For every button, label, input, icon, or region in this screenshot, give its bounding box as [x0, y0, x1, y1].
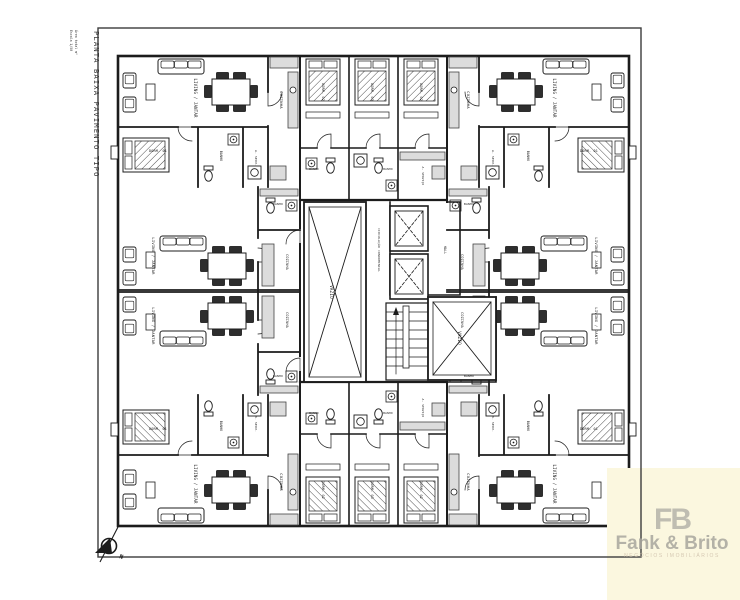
- logo-name: Fank & Brito: [616, 533, 729, 554]
- room-label: LIVING / JANTAR: [193, 464, 198, 504]
- room-label: BANHO: [526, 151, 530, 162]
- door-arc: [286, 230, 300, 244]
- room-label: LIVING / JANTAR: [594, 237, 599, 275]
- room-label: BANHO: [464, 374, 474, 378]
- room-label: COZINHA: [279, 473, 284, 491]
- room-label: COZINHA: [460, 312, 464, 328]
- room-label: BANHO: [219, 151, 223, 162]
- room-label: DORM. 02: [321, 83, 325, 101]
- room-label: BANHO: [309, 167, 319, 171]
- room-label: A. SERVIÇO: [421, 399, 425, 418]
- room-label: BANHO: [219, 421, 223, 432]
- room-label: BANHO: [526, 421, 530, 432]
- room-label: BANHO: [273, 374, 283, 378]
- apartment-mid-right-upper: [447, 187, 629, 292]
- room-label: BANHO: [383, 167, 393, 171]
- room-label: VAZIO: [329, 285, 334, 299]
- apartment-mid-left-lower: [118, 290, 300, 395]
- room-label: COZINHA: [460, 254, 464, 270]
- elevator-icon: [390, 206, 428, 251]
- void-left: [304, 202, 366, 382]
- logo-tagline: NEGÓCIOS IMOBILIÁRIOS: [624, 552, 720, 559]
- room-label: DORM. 01: [580, 149, 598, 153]
- room-label: DORM. 01: [580, 427, 598, 431]
- apartment-top-left: [111, 56, 298, 187]
- scale-note: Escala 1/50: [69, 30, 73, 51]
- room-label: VAZIO: [457, 331, 462, 345]
- room-label: COZINHA: [466, 91, 471, 109]
- room-label: LIVING / JANTAR: [151, 237, 156, 275]
- room-label: BANHO: [383, 411, 393, 415]
- room-label: COZINHA: [466, 473, 471, 491]
- room-label: DORM. 01: [149, 427, 167, 431]
- room-label: A. SERV.: [491, 150, 495, 166]
- room-label: DORM. 01: [149, 149, 167, 153]
- room-label: COZINHA: [285, 312, 289, 328]
- door-arc: [286, 358, 300, 372]
- room-label: A. SERVIÇO: [421, 167, 425, 186]
- stairs-icon: [386, 303, 428, 380]
- room-label: DORM. 02: [419, 481, 423, 499]
- room-label: DORM. 03: [370, 481, 374, 499]
- floor-plan-svg: LIVING / JANTARCOZINHADORM. 01BANHOA. SE…: [0, 0, 740, 600]
- room-label: CIRCULAÇÃO CONDOMINIAL: [377, 228, 382, 272]
- room-label: BANHO: [273, 202, 283, 206]
- room-label: LIVING / JANTAR: [594, 307, 599, 345]
- sheet-title: PLANTA BAIXA PAVIMENTO TIPO: [92, 31, 101, 178]
- drawing-sheet: LIVING / JANTARCOZINHADORM. 01BANHOA. SE…: [0, 0, 740, 600]
- apartment-bottom-left: [111, 395, 298, 526]
- room-label: BANHO: [464, 202, 474, 206]
- room-label: COZINHA: [279, 91, 284, 109]
- room-label: A. SERV.: [254, 150, 258, 166]
- room-label: LIVING / JANTAR: [552, 78, 557, 118]
- room-label: BANHO: [309, 411, 319, 415]
- apartment-top-right: [449, 56, 636, 187]
- room-label: LIVING / JANTAR: [193, 78, 198, 118]
- elevator-icon: [390, 254, 428, 299]
- room-label: COZINHA: [285, 254, 289, 270]
- area-note: Área total m²: [74, 30, 79, 55]
- room-label: HALL: [443, 246, 447, 254]
- room-label: A. SERV.: [254, 416, 258, 432]
- room-label: DORM. 02: [419, 83, 423, 101]
- room-label: DORM. 02: [321, 481, 325, 499]
- floor-plan: LIVING / JANTARCOZINHADORM. 01BANHOA. SE…: [111, 56, 636, 526]
- logo-monogram: FB: [654, 503, 691, 536]
- room-label: LIVING / JANTAR: [151, 307, 156, 345]
- room-label: LIVING / JANTAR: [552, 464, 557, 504]
- room-label: A. SERV.: [491, 416, 495, 432]
- room-label: DORM. 03: [370, 83, 374, 101]
